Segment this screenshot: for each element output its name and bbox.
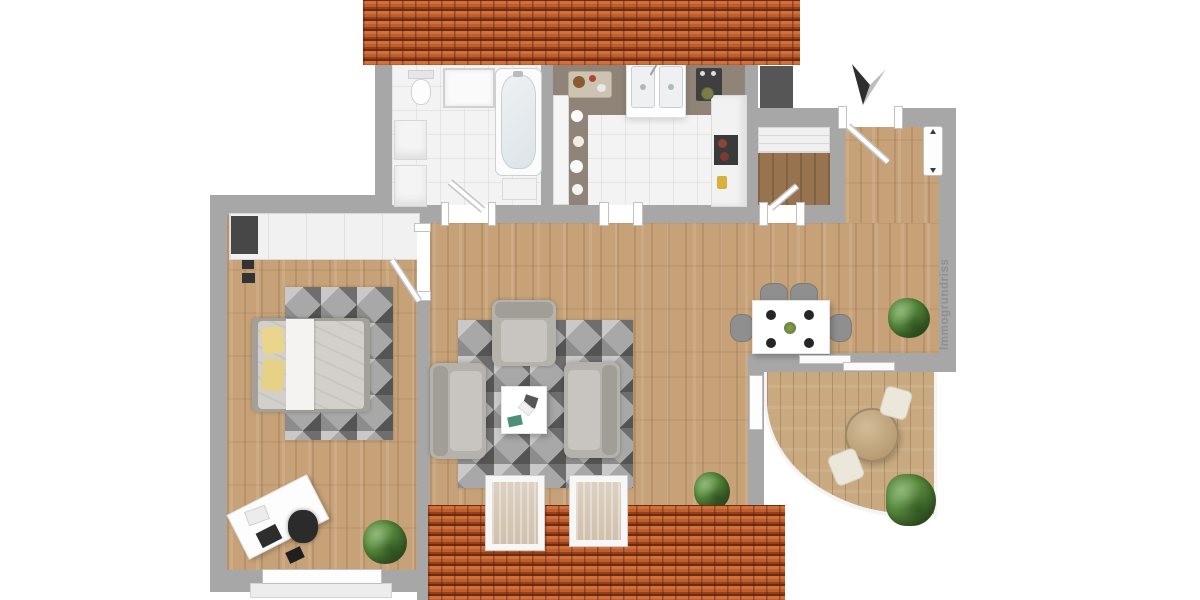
bath-cabinet	[502, 178, 537, 200]
dining-chair	[730, 314, 754, 342]
bowl	[570, 160, 583, 173]
dining-plant	[888, 298, 930, 338]
left-outer-wall	[210, 195, 227, 592]
bath-kitchen-bottom-wall	[375, 205, 758, 223]
cooktop-knob	[700, 71, 705, 76]
office-window-sill-outer	[250, 583, 392, 598]
skylight	[570, 476, 627, 546]
food-item	[589, 75, 596, 82]
place-setting	[804, 310, 814, 320]
wall-item-dark	[242, 273, 255, 283]
kitchen-passage-opening	[608, 205, 634, 223]
armchair-top-cushion	[501, 320, 547, 362]
bathroom-door-opening	[448, 205, 489, 223]
food-item	[573, 76, 585, 88]
armchair-left-cushion	[450, 371, 482, 451]
place-setting	[766, 310, 776, 320]
food-item	[597, 84, 606, 92]
storage-room-floor	[758, 150, 830, 207]
living-balcony-window	[749, 375, 763, 430]
kitchen-appliance-yellow	[717, 176, 727, 189]
door-jamb	[414, 223, 431, 232]
bowl	[572, 184, 583, 195]
sink-drain	[640, 84, 646, 90]
bath-kitchen-divider-wall	[541, 65, 553, 215]
shower	[443, 68, 495, 108]
door-jamb	[633, 202, 643, 226]
door-jamb	[599, 202, 609, 226]
oven-burner	[718, 139, 727, 148]
bowl	[571, 110, 583, 122]
sink-drain	[668, 84, 674, 90]
door-jamb	[759, 202, 768, 226]
door-jamb	[441, 202, 449, 226]
pan	[701, 87, 714, 100]
storage-right-wall	[830, 123, 845, 223]
pillow-yellow	[261, 326, 286, 355]
dining-chair	[828, 314, 852, 342]
bedroom-top-wall	[210, 195, 392, 215]
bathtub-basin	[501, 75, 536, 169]
skylight	[486, 476, 544, 550]
watermark-text: Immogrundriss	[939, 252, 951, 350]
office-chair	[288, 510, 318, 543]
vanity-cabinet	[394, 165, 427, 207]
table-centerpiece	[784, 322, 796, 334]
toilet-bowl	[411, 79, 431, 105]
office-window	[262, 569, 382, 584]
balcony-shrub	[886, 474, 936, 526]
door-jamb	[796, 202, 805, 226]
bedroom-door-opening	[417, 231, 430, 292]
wall-item-dark	[242, 260, 254, 269]
floor-plan: Immogrundriss	[0, 0, 1200, 600]
storage-door-opening	[768, 205, 798, 223]
entry-top-wall-left	[745, 108, 845, 127]
balcony-sliding-door-panel	[843, 362, 895, 371]
office-plant	[363, 520, 407, 564]
storage-shelf-unit	[758, 127, 830, 153]
wardrobe-dark-section	[231, 216, 258, 254]
armchair-right-back	[602, 365, 617, 455]
doormat-shaft	[760, 66, 793, 111]
oven-burner	[720, 152, 729, 161]
roof-top	[363, 0, 800, 65]
vanity-cabinet	[394, 120, 427, 160]
door-jamb	[488, 202, 496, 226]
pillow-yellow	[261, 358, 286, 392]
bed-runner	[286, 319, 314, 410]
toilet	[408, 70, 434, 79]
place-setting	[804, 338, 814, 348]
place-setting	[766, 338, 776, 348]
north-arrow-icon	[846, 58, 898, 110]
cooktop-knob	[711, 71, 716, 76]
armchair-right-cushion	[568, 370, 600, 450]
armchair-left-back	[433, 366, 448, 456]
kitchen-cabinet-left	[553, 95, 569, 205]
bathtub-faucet	[513, 71, 523, 77]
armchair-top-back	[495, 302, 553, 318]
bathroom-left-wall	[375, 65, 392, 215]
bowl	[573, 136, 584, 147]
door-jamb	[414, 291, 431, 301]
